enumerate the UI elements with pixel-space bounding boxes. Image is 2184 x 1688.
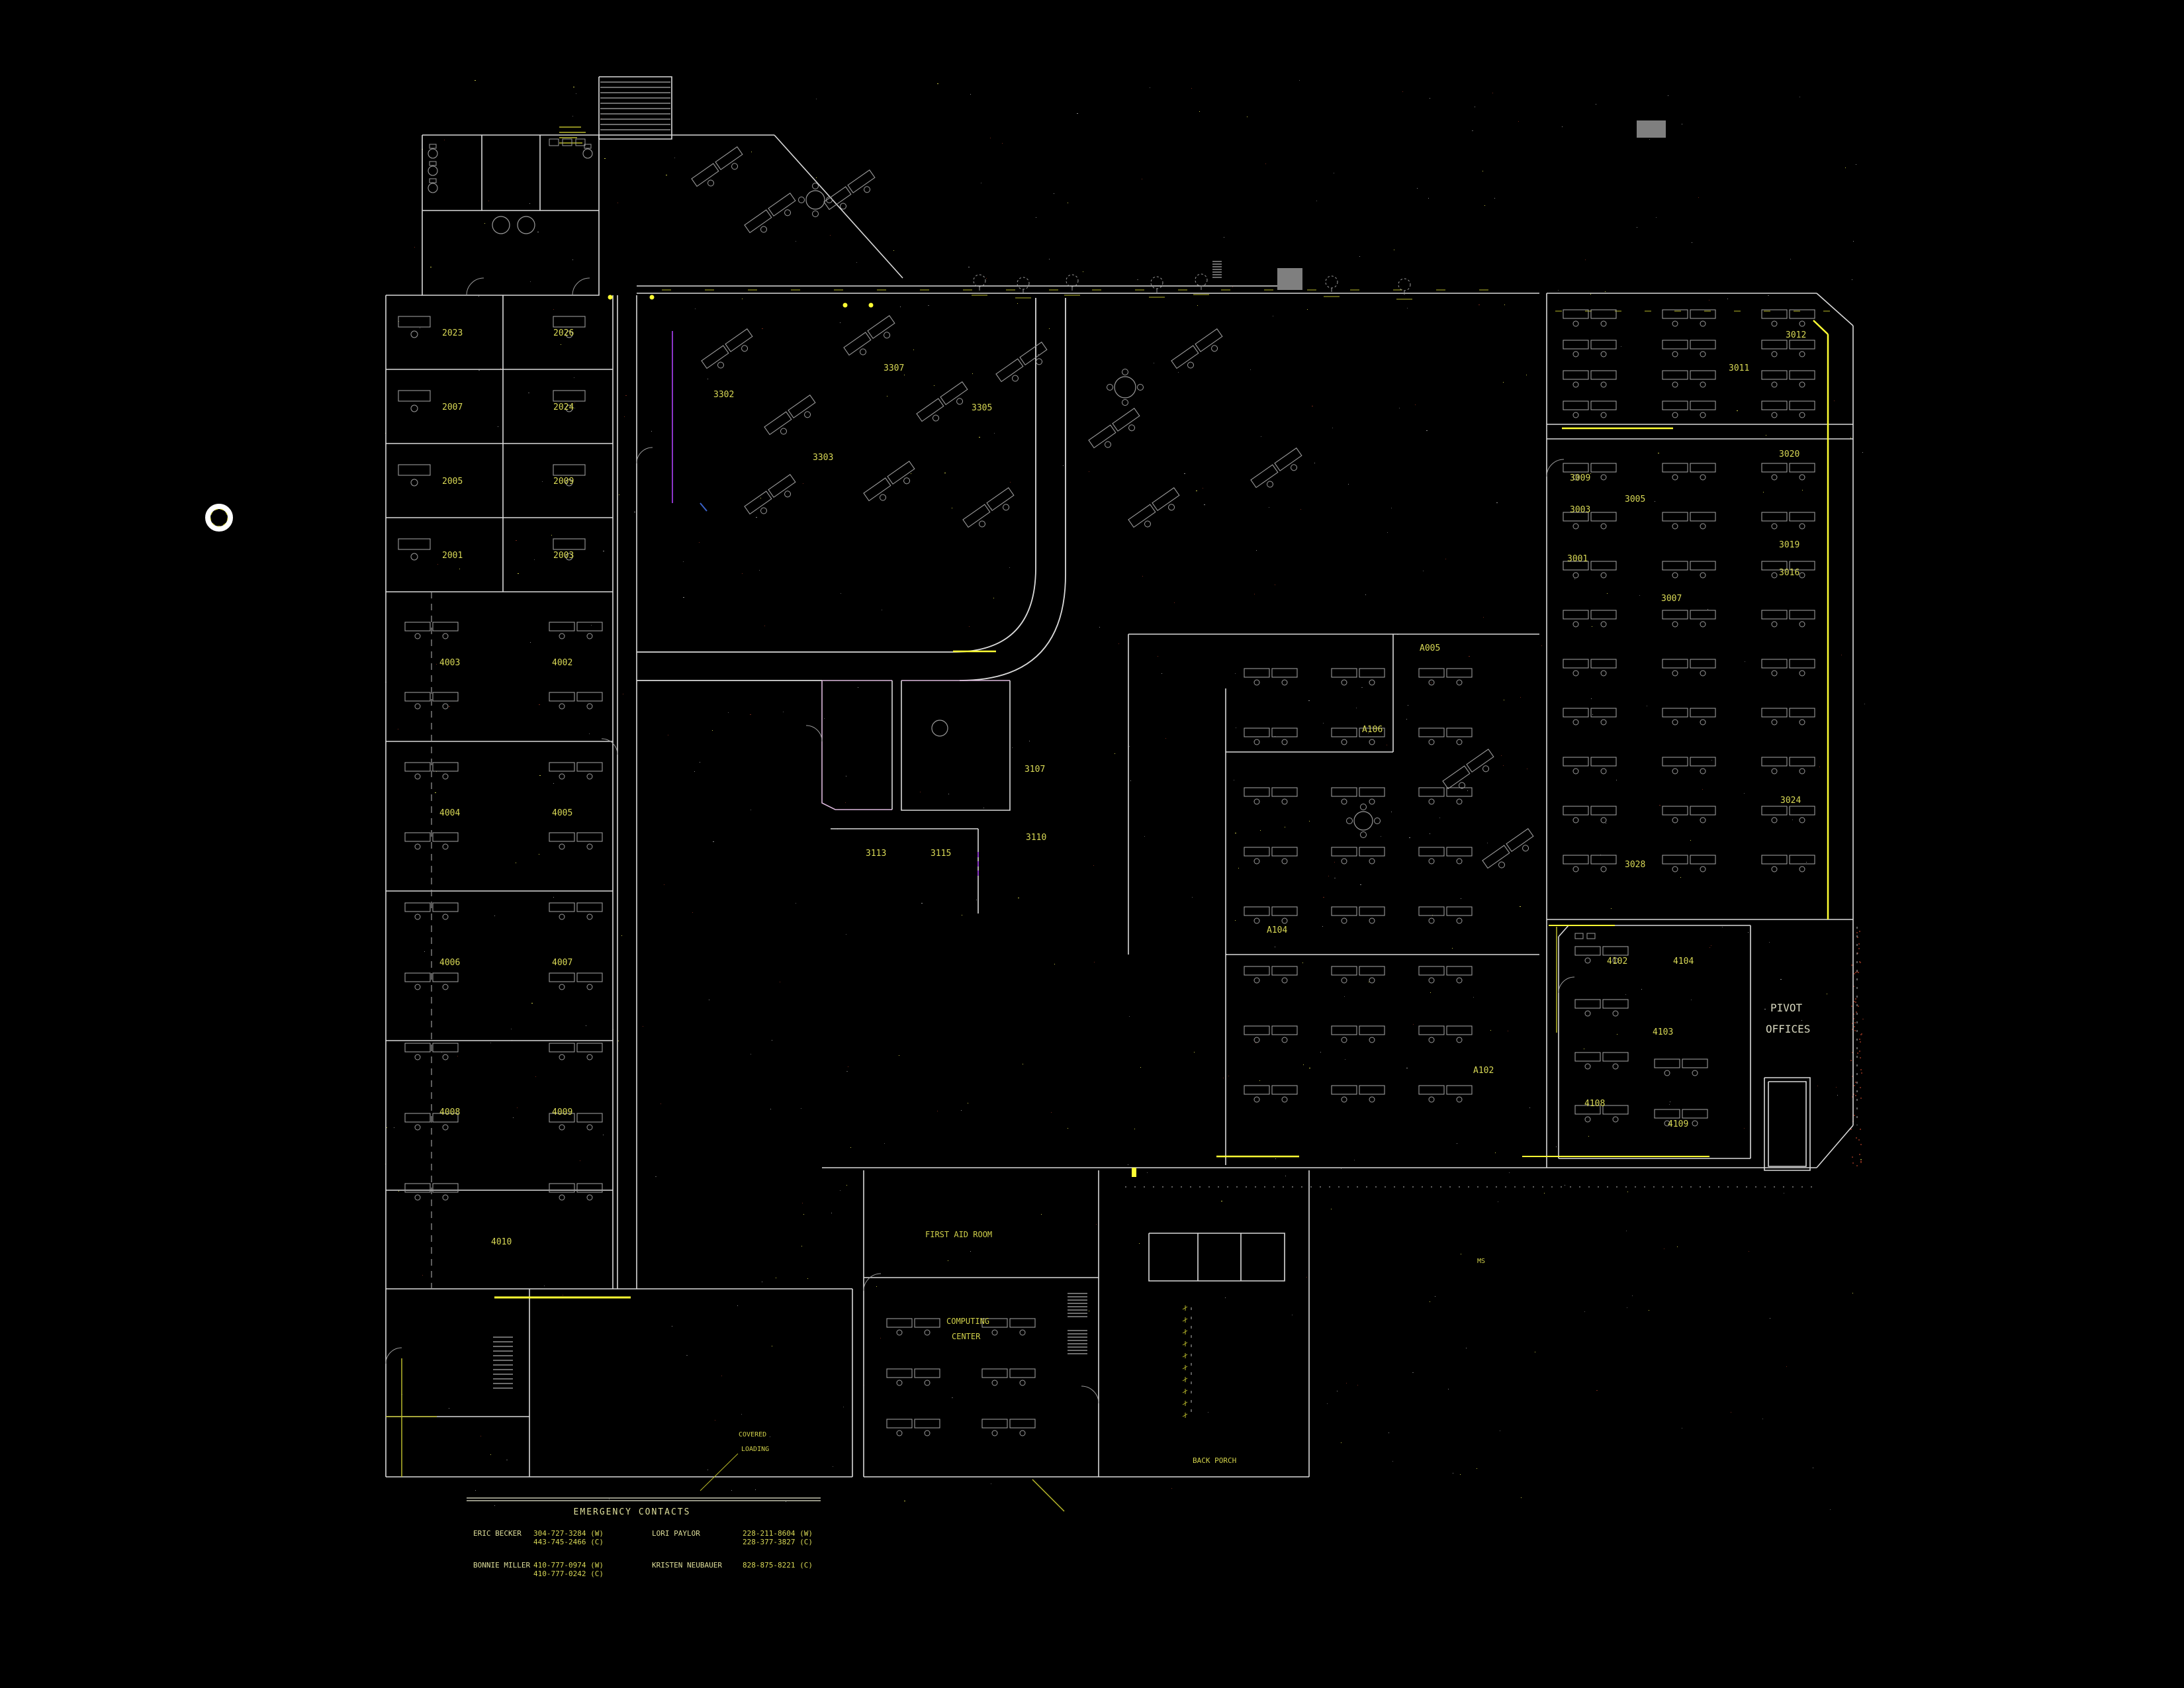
speckle [643,1026,643,1027]
speckle [830,235,831,236]
speckle [1556,1147,1557,1147]
speckle [1584,1049,1584,1049]
speckle [449,1408,449,1409]
speckle [1140,1067,1141,1068]
speckle [528,393,529,393]
speckle [1423,571,1424,571]
red-speckle [1858,972,1859,973]
speckle [1408,705,1408,706]
speckle [589,733,590,734]
speckle [715,1420,715,1421]
speckle [1038,354,1039,355]
speckle [846,1071,848,1072]
speckle [816,177,817,178]
speckle [913,350,914,350]
speckle [516,863,516,863]
speckle [1417,188,1418,189]
room-label: 4005 [552,808,572,818]
room-label: 3115 [931,849,951,859]
drawing-background [0,0,2184,1688]
speckle [686,1355,688,1356]
speckle [422,1275,423,1276]
contact-phone: 828-875-8221 (C) [743,1561,813,1570]
speckle [1637,227,1637,228]
speckle [603,551,604,551]
speckle [660,1103,661,1104]
speckle [900,306,901,307]
speckle [1322,926,1323,927]
red-speckle [1860,1160,1862,1162]
speckle [796,903,796,904]
speckle [539,775,541,776]
red-speckle [1860,1144,1862,1145]
speckle [1509,1172,1510,1173]
speckle [494,915,495,916]
speckle [1316,201,1317,201]
speckle [961,1110,962,1111]
speckle [887,396,887,397]
speckle [1150,87,1150,88]
red-speckle [1852,1156,1853,1158]
speckle [968,267,970,267]
speckle [1430,992,1431,993]
speckle [1269,507,1269,508]
speckle [1656,217,1657,218]
speckle [880,1338,881,1338]
speckle [478,370,480,371]
speckle [1709,947,1710,948]
speckle [1692,242,1692,243]
speckle [1565,1185,1565,1186]
speckle [1504,700,1504,700]
annotation-text: OFFICES [1766,1023,1810,1035]
speckle [1769,942,1770,943]
red-speckle [1855,1002,1856,1003]
speckle [1129,746,1130,747]
speckle [1234,780,1234,780]
speckle [1845,167,1846,168]
speckle [1501,755,1502,756]
room-label: 4010 [491,1237,512,1247]
speckle [574,402,575,403]
speckle [553,897,554,898]
speckle [1250,369,1251,370]
speckle [695,308,696,309]
speckle [1439,818,1440,818]
speckle [394,1127,394,1128]
speckle [1134,1129,1135,1129]
speckle [1544,1193,1545,1194]
speckle [802,1203,803,1203]
red-speckle [1860,962,1861,963]
speckle [1727,299,1728,299]
speckle [1012,747,1013,748]
speckle [1503,765,1504,766]
speckle [1391,812,1392,812]
speckle [816,99,817,99]
speckle [1387,745,1387,745]
speckle [1142,179,1142,179]
speckle [1165,738,1166,739]
speckle [1161,673,1162,674]
red-speckle [1854,1001,1855,1002]
speckle [1770,1318,1770,1319]
speckle [1616,780,1617,780]
speckle [1535,1352,1535,1352]
speckle [969,626,970,627]
speckle [968,1103,968,1103]
speckle [1483,617,1484,618]
red-speckle [1859,1051,1860,1052]
speckle [1017,303,1018,304]
speckle [572,116,573,117]
annotation-text: LOADING [741,1446,769,1453]
speckle [876,1286,877,1287]
speckle [1225,1297,1226,1298]
door-dot [650,295,655,300]
annotation-text: BACK PORCH [1193,1456,1236,1465]
speckle [1682,1428,1682,1429]
speckle [707,379,708,379]
annotation-text: CENTER [952,1332,981,1341]
speckle [976,900,977,900]
speckle [511,1029,512,1029]
room-label: 3009 [1570,473,1590,483]
speckle [1077,113,1078,114]
contact-phone: 410-777-0242 (C) [533,1570,604,1578]
speckle [537,232,539,232]
speckle [1147,1172,1148,1173]
speckle [1118,643,1119,644]
speckle [1348,484,1349,485]
speckle [1649,139,1650,140]
speckle [1130,780,1131,781]
speckle [542,481,543,482]
speckle [990,138,991,138]
speckle [1521,1497,1522,1498]
speckle [1862,1019,1864,1019]
speckle [573,87,574,87]
speckle [1677,1246,1678,1247]
speckle [762,1282,762,1282]
red-speckle [1859,1154,1860,1155]
speckle [444,140,445,140]
speckle [920,792,921,792]
speckle [414,247,415,248]
speckle [1309,1068,1310,1068]
speckle [1394,250,1394,250]
speckle [1388,1432,1389,1433]
speckle [1806,862,1807,863]
speckle [803,483,803,484]
speckle [1430,98,1430,99]
speckle [1407,308,1408,308]
speckle [494,1505,495,1506]
speckle [1503,382,1504,383]
speckle [1632,1295,1633,1296]
speckle [1029,741,1030,741]
speckle [1655,501,1655,502]
speckle [731,1490,732,1491]
speckle [1682,124,1682,124]
red-speckle [1854,1030,1856,1031]
speckle [1606,823,1606,823]
speckle [436,664,437,665]
speckle [1093,865,1094,866]
speckle [1731,1412,1731,1413]
emergency-contacts-title: EMERGENCY CONTACTS [574,1507,691,1517]
speckle [1235,920,1236,921]
speckle [1428,198,1429,199]
speckle [1089,1311,1089,1311]
speckle [1813,1468,1813,1468]
speckle [586,1025,586,1026]
speckle [517,1107,518,1108]
speckle [500,368,501,369]
speckle [1435,1296,1435,1297]
speckle [435,792,436,793]
room-label: 3011 [1729,363,1749,373]
room-label: 4008 [439,1107,460,1117]
speckle [840,322,841,323]
speckle [751,152,752,152]
speckle [1191,88,1192,89]
speckle [437,564,438,565]
speckle [1641,989,1642,990]
speckle [1197,305,1198,306]
speckle [993,598,994,598]
speckle [420,328,420,328]
speckle [994,433,995,434]
speckle [475,1490,476,1491]
speckle [488,201,489,201]
speckle [1273,316,1273,316]
speckle [617,203,618,203]
speckle [1649,1310,1649,1311]
speckle [1621,346,1621,347]
speckle [904,1501,905,1501]
speckle [1479,305,1480,305]
speckle [986,278,987,279]
speckle [457,1056,458,1056]
speckle [756,517,757,518]
speckle [1856,164,1856,165]
speckle [1737,410,1738,411]
speckle [666,175,667,175]
room-label: 3024 [1780,796,1801,806]
speckle [1285,827,1285,827]
speckle [884,1143,885,1144]
red-speckle [1855,1095,1856,1096]
red-speckle [1851,1006,1852,1007]
speckle [1784,1193,1784,1194]
speckle [796,241,796,242]
speckle [1484,205,1485,206]
room-label: 3019 [1779,540,1799,550]
speckle [1504,305,1505,305]
speckle [1235,673,1236,674]
speckle [563,1295,563,1295]
speckle [1323,723,1324,724]
speckle [1477,1468,1477,1469]
speckle [591,625,592,626]
speckle [1174,602,1175,603]
speckle [944,473,946,473]
speckle [934,385,934,386]
red-speckle [1860,1129,1861,1130]
speckle [1617,1034,1617,1035]
speckle [1780,979,1782,980]
speckle [1596,1390,1598,1391]
speckle [604,158,606,159]
speckle [1520,697,1521,698]
speckle [1083,271,1083,272]
speckle [776,1278,776,1278]
red-speckle [1860,1041,1861,1043]
speckle [619,494,619,495]
speckle [1139,1243,1140,1244]
speckle [709,1000,709,1000]
speckle [1128,1164,1128,1165]
speckle [561,344,561,345]
speckle [981,183,981,183]
speckle [1391,508,1392,508]
speckle [856,262,857,263]
speckle [728,712,729,713]
speckle [1223,1078,1224,1078]
red-speckle [1858,948,1860,949]
room-label: 3107 [1024,765,1045,774]
speckle [1265,164,1266,164]
red-speckle [1850,1060,1852,1061]
speckle [553,309,554,310]
speckle [1337,1391,1338,1391]
speckle [1346,1383,1347,1383]
speckle [530,281,531,282]
speckle [786,1501,786,1502]
speckle [850,1147,851,1148]
speckle [518,573,519,574]
speckle [1049,259,1050,259]
red-speckle [1859,931,1860,932]
speckle [1592,626,1592,627]
red-speckle [1855,998,1856,1000]
speckle [937,83,938,84]
room-label: 4109 [1668,1119,1688,1129]
speckle [721,1376,722,1376]
speckle [1592,714,1593,715]
red-speckle [1858,943,1860,945]
speckle [1596,104,1596,105]
speckle [899,1055,899,1056]
speckle [1308,700,1310,701]
red-speckle [1861,1072,1862,1074]
room-label: 4102 [1607,957,1627,966]
speckle [1490,1030,1491,1031]
speckle [1224,237,1224,238]
speckle [1306,1277,1307,1278]
speckle [1344,996,1345,997]
speckle [1526,375,1527,375]
speckle [1802,490,1803,491]
speckle [609,1499,610,1499]
speckle [1357,1385,1358,1385]
contact-name: BONNIE MILLER [473,1561,530,1570]
room-label: 3303 [813,453,833,463]
speckle [1063,465,1064,466]
speckle [833,1466,833,1467]
speckle [1235,833,1236,833]
red-speckle [1860,1162,1862,1163]
speckle [1412,1372,1414,1373]
red-speckle [1860,1098,1862,1099]
speckle [1334,173,1334,173]
speckle [1054,193,1054,194]
speckle [807,1278,808,1279]
speckle [1002,143,1003,144]
speckle [1359,256,1360,257]
speckle [1292,1315,1293,1315]
speckle [1698,197,1699,198]
speckle [846,934,846,935]
contact-phone: 228-211-8604 (W) [743,1529,813,1538]
speckle [1275,585,1275,585]
speckle [741,1414,742,1415]
gray-box [1277,268,1302,290]
speckle [1690,840,1691,841]
speckle [1430,833,1430,834]
speckle [1041,1214,1042,1215]
room-label: 2024 [553,402,574,412]
speckle [1702,789,1703,790]
speckle [1768,295,1769,296]
speckle [983,808,984,808]
speckle [574,408,575,408]
speckle [1529,1107,1530,1108]
speckle [655,1176,657,1177]
speckle [1482,171,1483,171]
room-label: A106 [1362,725,1383,735]
speckle [1302,962,1303,963]
speckle [1625,994,1626,995]
room-label: A005 [1420,643,1440,653]
speckle [937,1111,938,1111]
speckle [841,593,841,594]
speckle [1469,656,1470,657]
speckle [603,1135,604,1135]
speckle [553,783,554,784]
speckle [1194,1052,1195,1053]
red-speckle [1858,1139,1860,1141]
room-label: 4002 [552,658,572,668]
red-speckle [1855,1082,1856,1083]
speckle [772,1040,772,1041]
room-label: 3302 [713,390,734,400]
speckle [534,559,535,560]
room-label: 3020 [1779,449,1799,459]
speckle [480,1436,481,1436]
speckle [1496,502,1498,503]
speckle [531,1003,533,1004]
speckle [755,1489,756,1490]
speckle [1508,1031,1508,1031]
speckle [1381,836,1381,837]
speckle [1864,704,1865,704]
speckle [651,431,652,432]
contact-phone: 410-777-0974 (W) [533,1561,604,1570]
speckle [840,1190,841,1191]
floorplan-canvas[interactable]: 2023202620072024200520092001200340034002… [0,0,2184,1688]
